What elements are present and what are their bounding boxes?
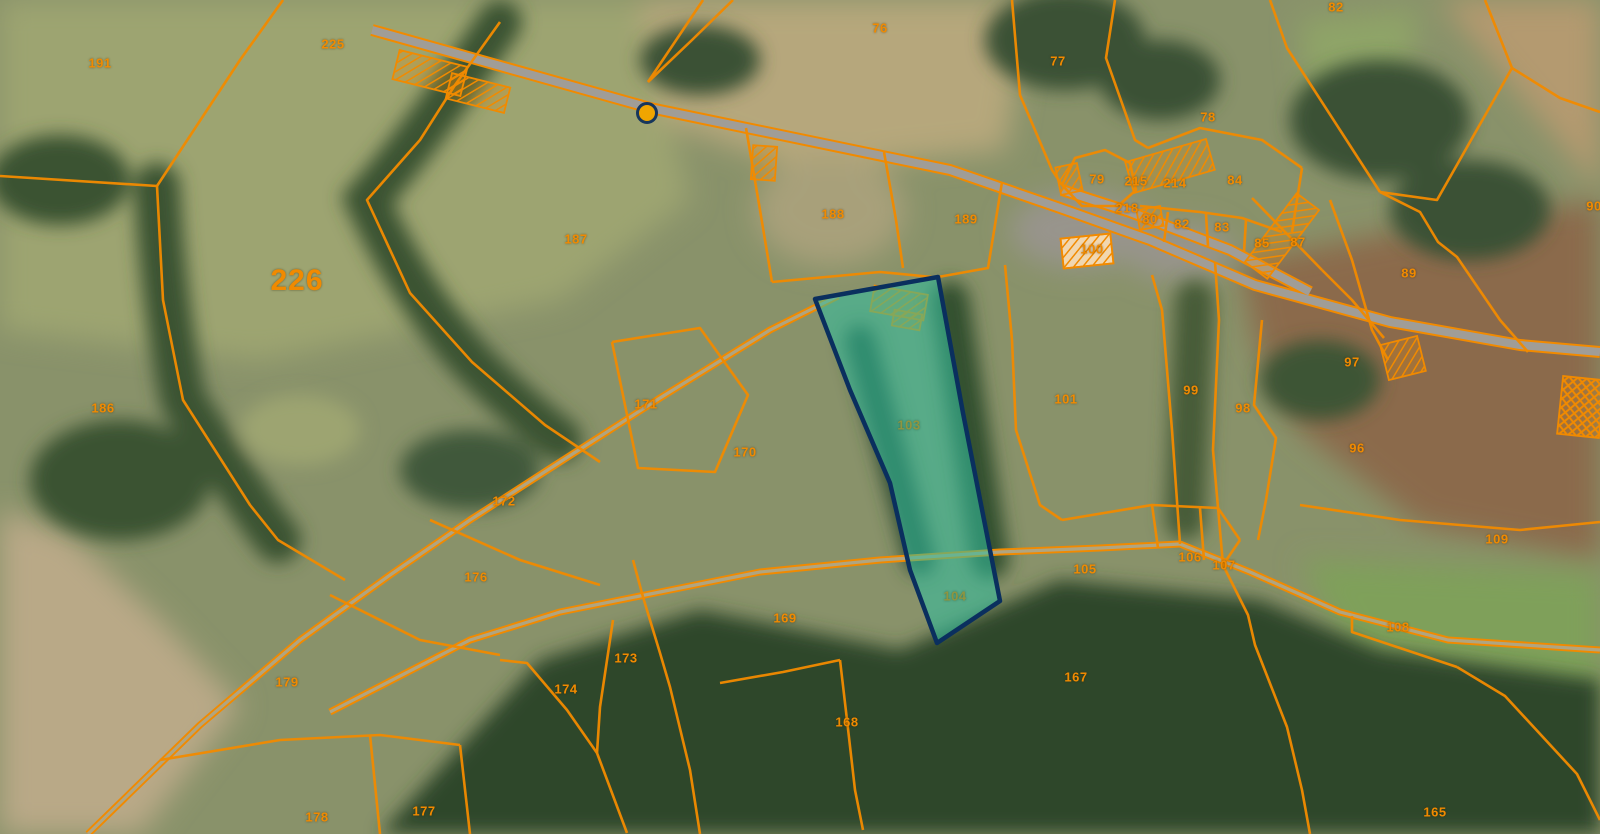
road-network [88,30,1600,834]
cadastre-overlay-layer [0,0,1600,834]
parcel-boundaries [0,0,1600,834]
map-viewport[interactable]: 1912252261867677827818718818979215214842… [0,0,1600,834]
location-marker-icon[interactable] [636,102,658,124]
selected-parcel[interactable] [815,277,1000,643]
building-footprints [392,50,1600,438]
